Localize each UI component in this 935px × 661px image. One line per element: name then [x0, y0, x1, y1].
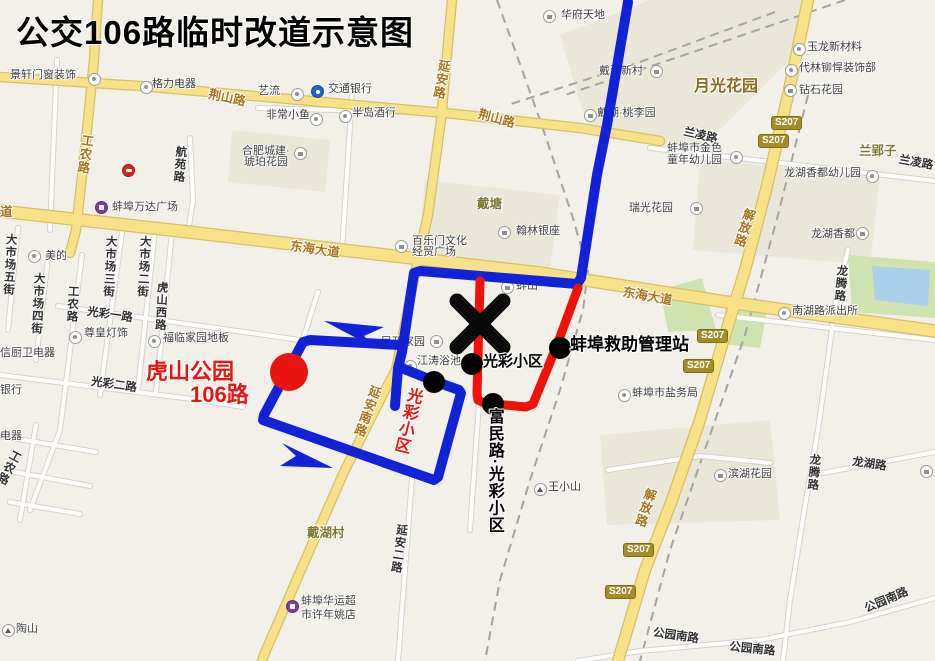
bus-stop-dot [482, 393, 504, 415]
new-route-blue-trunk [395, 2, 628, 406]
bus-stop-dot [461, 353, 483, 375]
route-overlay-layer [0, 0, 935, 661]
map-canvas: 景轩门窗装饰格力电器荆山路艺流交通银行非常小鱼半岛酒行延安路荆山路华府天地戴湖新… [0, 0, 935, 661]
bus-stop-dot [423, 371, 445, 393]
bus-stop-dot [549, 337, 571, 359]
map-title: 公交106路临时改道示意图 [16, 6, 414, 54]
terminal-stop-dot [270, 353, 308, 391]
